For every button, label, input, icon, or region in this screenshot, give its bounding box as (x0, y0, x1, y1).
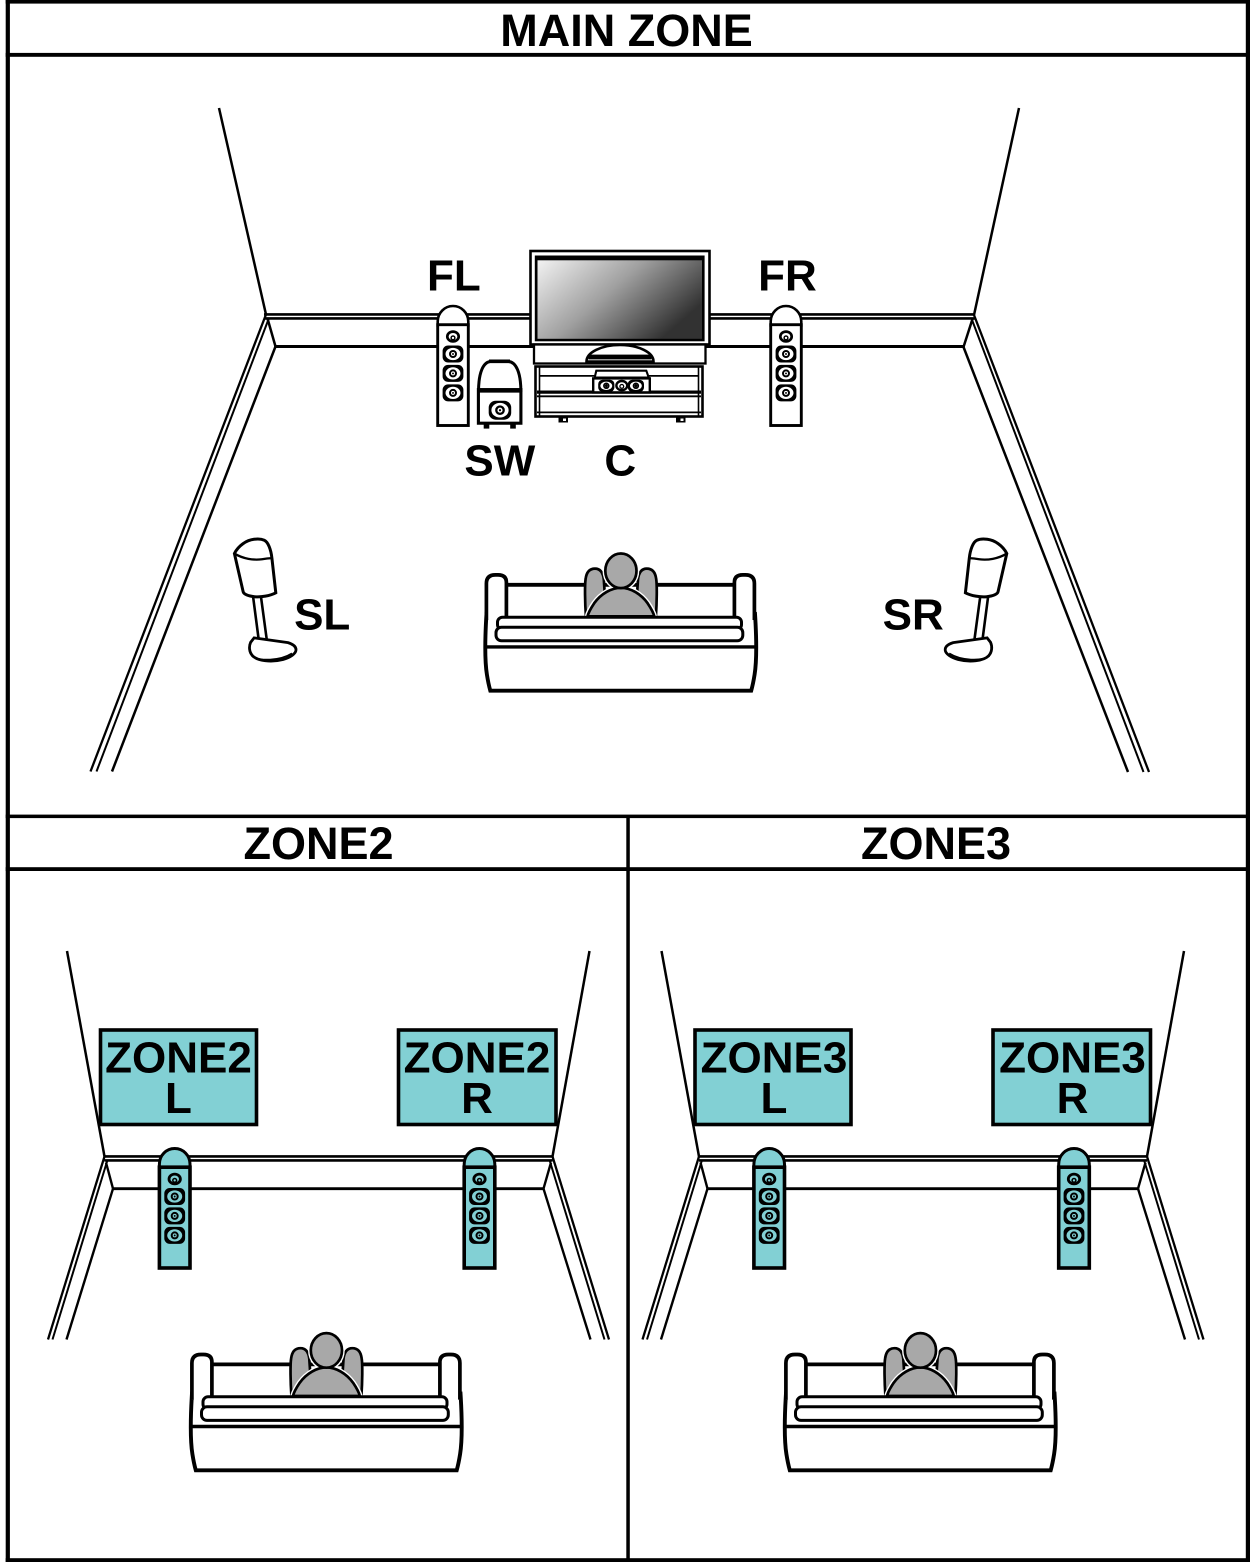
svg-text:FR: FR (758, 251, 817, 300)
svg-text:ZONE3: ZONE3 (861, 818, 1011, 869)
svg-text:L: L (761, 1074, 788, 1123)
svg-text:ZONE2: ZONE2 (243, 818, 393, 869)
svg-text:C: C (604, 437, 636, 486)
svg-text:MAIN ZONE: MAIN ZONE (500, 5, 753, 56)
svg-text:SR: SR (883, 591, 944, 640)
svg-text:L: L (165, 1074, 192, 1123)
svg-text:SL: SL (294, 591, 350, 640)
svg-text:R: R (461, 1074, 493, 1123)
svg-text:R: R (1057, 1074, 1089, 1123)
svg-text:SW: SW (464, 437, 535, 486)
svg-text:FL: FL (427, 251, 481, 300)
